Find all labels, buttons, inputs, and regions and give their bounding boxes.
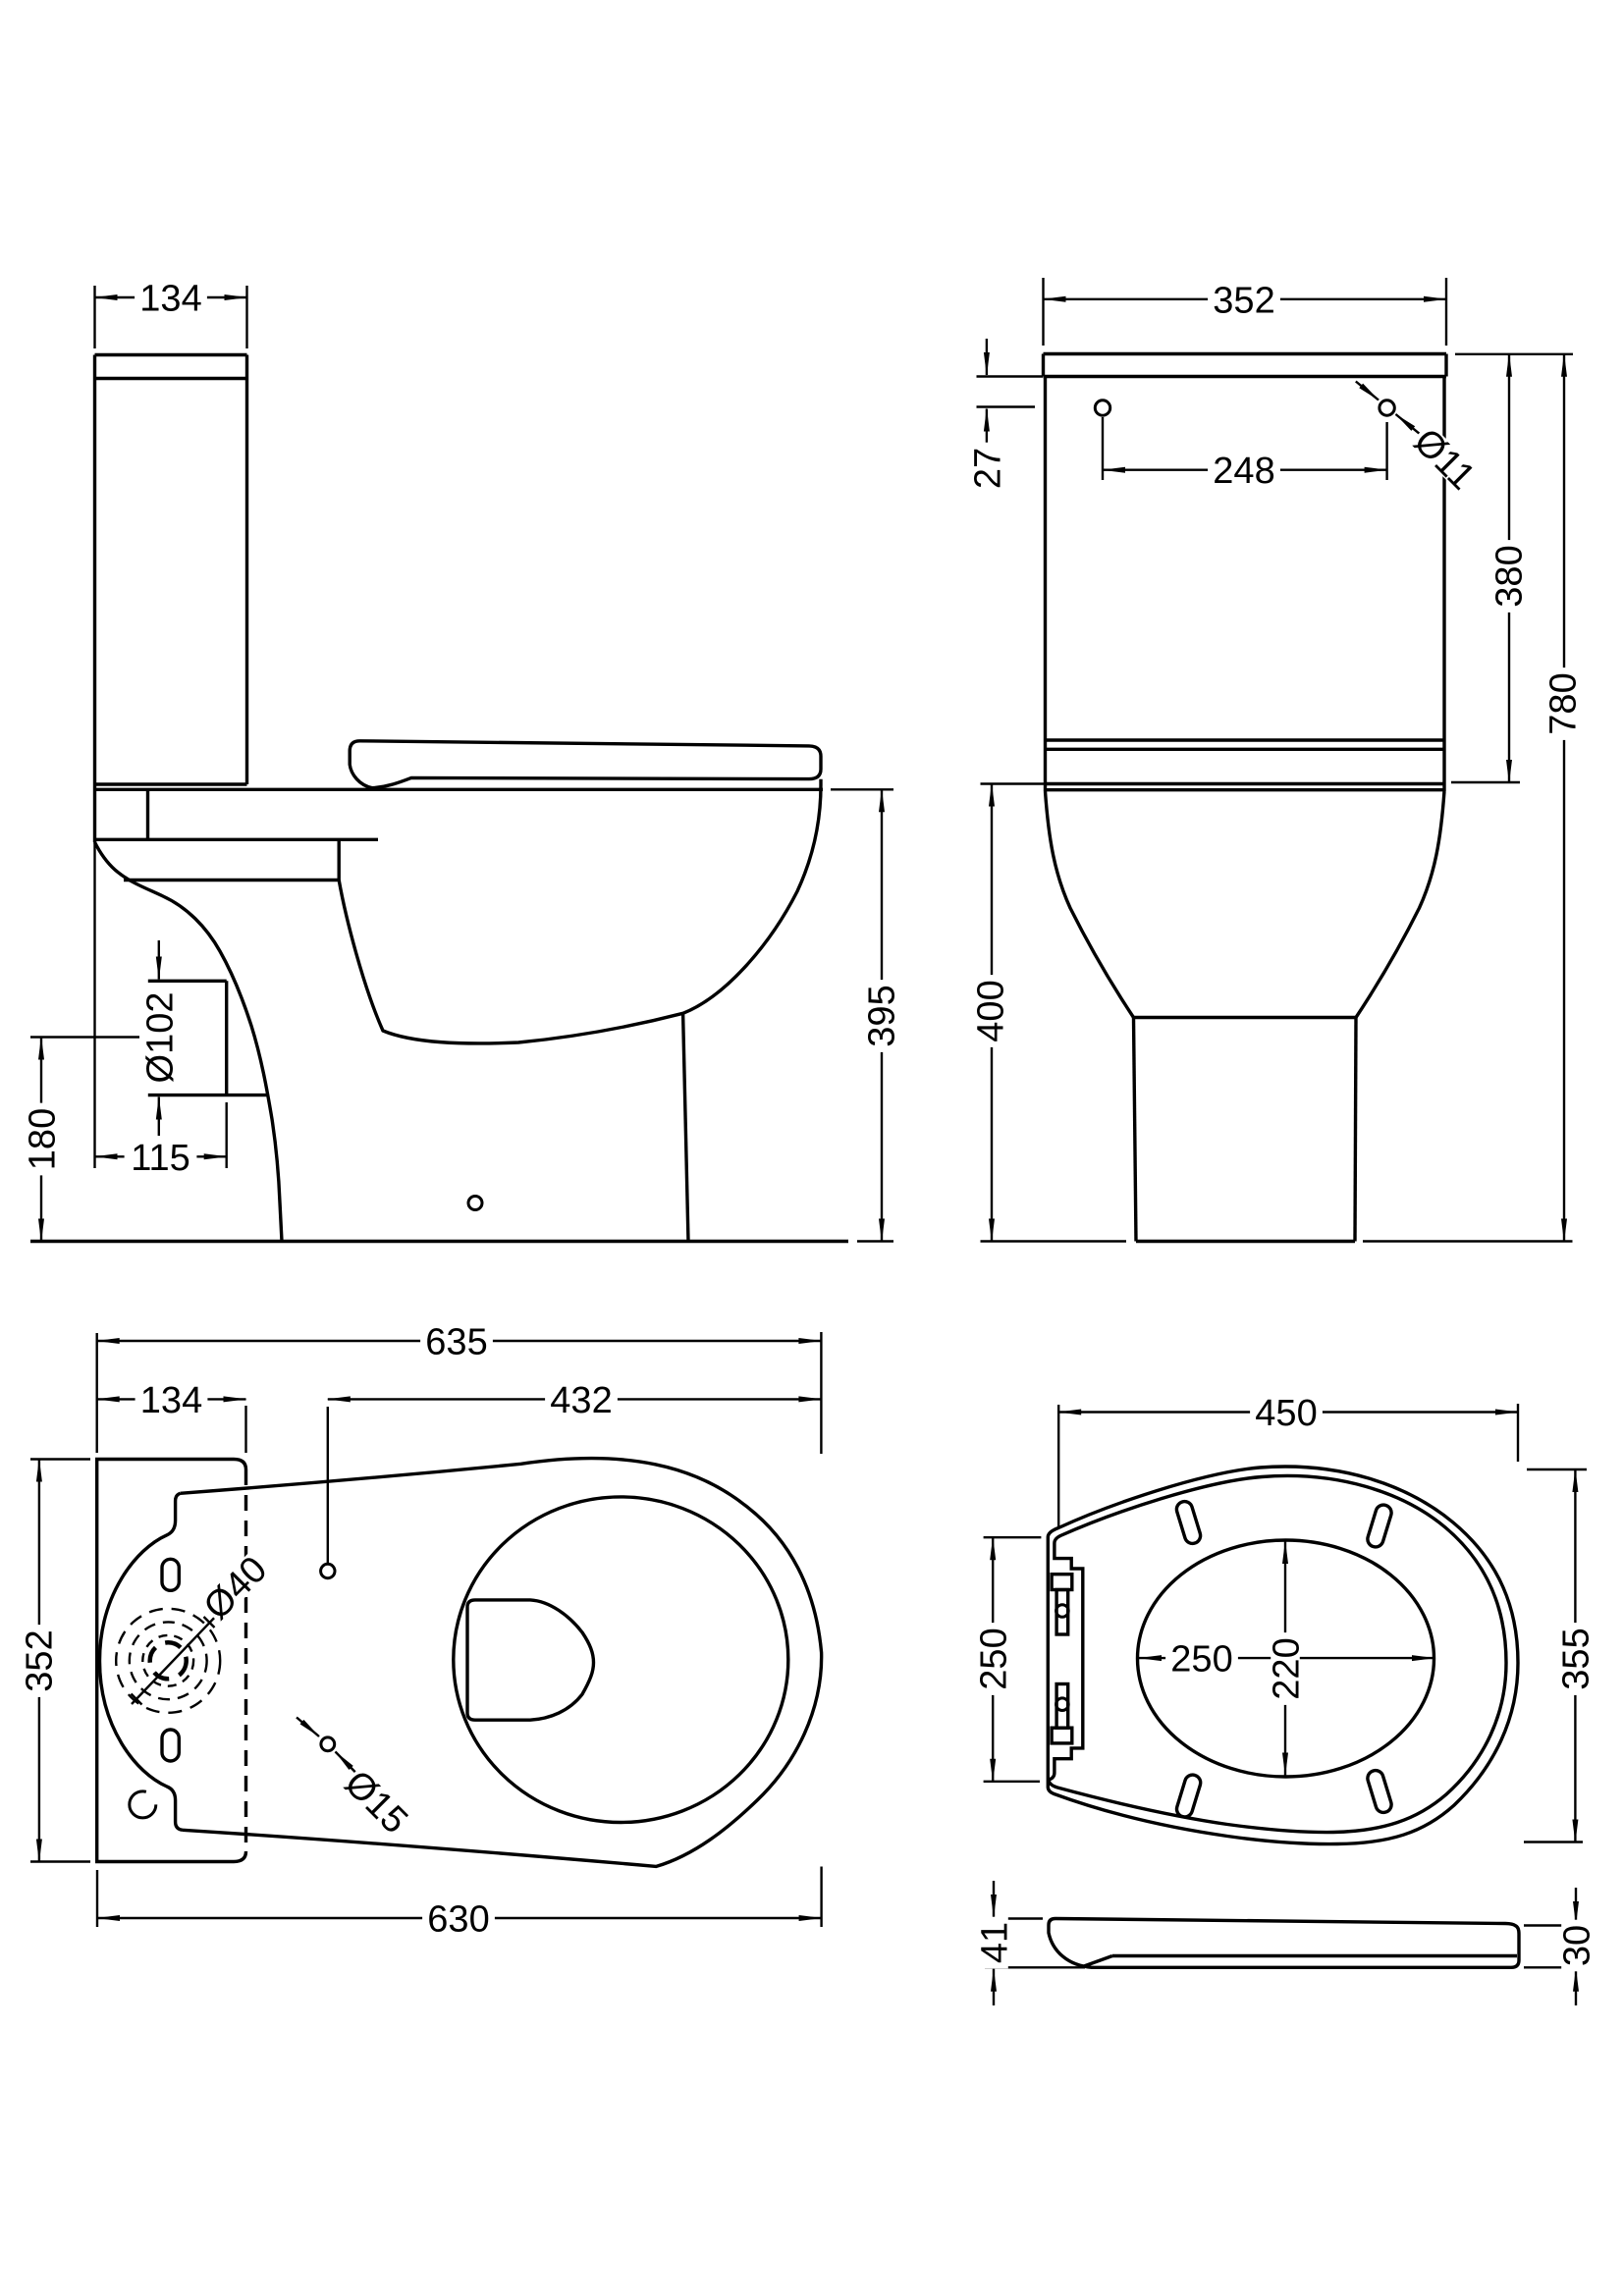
svg-text:400: 400 <box>971 980 1012 1041</box>
svg-text:352: 352 <box>1213 280 1274 321</box>
svg-text:220: 220 <box>1267 1637 1308 1699</box>
svg-text:27: 27 <box>967 448 1008 489</box>
svg-text:352: 352 <box>20 1629 61 1691</box>
svg-text:250: 250 <box>1170 1639 1232 1681</box>
svg-text:635: 635 <box>425 1322 487 1363</box>
svg-text:780: 780 <box>1543 672 1585 734</box>
svg-text:41: 41 <box>975 1922 1016 1963</box>
svg-text:250: 250 <box>974 1628 1015 1689</box>
svg-text:30: 30 <box>1557 1925 1598 1966</box>
svg-text:115: 115 <box>131 1138 190 1179</box>
svg-text:134: 134 <box>139 279 201 320</box>
svg-text:134: 134 <box>140 1380 202 1421</box>
svg-text:355: 355 <box>1556 1628 1597 1689</box>
svg-text:248: 248 <box>1213 451 1274 492</box>
svg-text:630: 630 <box>427 1899 489 1941</box>
svg-text:432: 432 <box>550 1380 612 1421</box>
svg-text:Ø102: Ø102 <box>139 992 181 1084</box>
svg-text:180: 180 <box>23 1108 64 1170</box>
svg-text:395: 395 <box>862 985 903 1046</box>
svg-text:450: 450 <box>1255 1393 1317 1434</box>
svg-text:380: 380 <box>1489 545 1531 607</box>
